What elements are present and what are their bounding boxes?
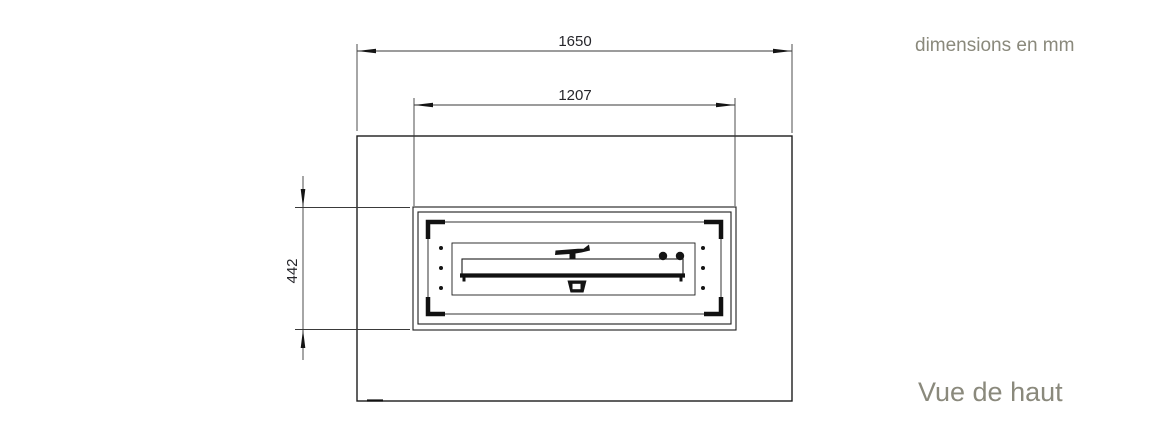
arrowhead-left xyxy=(357,49,376,54)
corner-bracket-top-right xyxy=(704,222,721,239)
dimension-overall-width: 1650 xyxy=(357,33,792,133)
burner-assembly xyxy=(413,207,736,330)
corner-bracket-bottom-left xyxy=(428,297,445,314)
dimension-value-burner-depth: 442 xyxy=(284,258,301,283)
screw-dot xyxy=(439,286,443,290)
drain-valve-window xyxy=(573,284,581,289)
control-knob-right xyxy=(676,252,684,260)
dimension-burner-depth: 442 xyxy=(284,176,410,360)
corner-bracket-top-left xyxy=(428,222,445,239)
burner-assembly-inner-frame xyxy=(418,212,731,324)
corner-bracket-bottom-right xyxy=(704,297,721,314)
arrowhead-bottom xyxy=(301,330,306,349)
screw-dot xyxy=(439,266,443,270)
screw-dot xyxy=(701,286,705,290)
burner-mount-frame xyxy=(428,222,721,314)
control-knob-left xyxy=(659,252,667,260)
dimension-burner-width: 1207 xyxy=(414,87,735,206)
technical-drawing-page: 1650 1207 442 dimensions en mm Vue de ha… xyxy=(0,0,1158,439)
arrowhead-right xyxy=(716,103,735,108)
dimension-value-burner-width: 1207 xyxy=(558,87,591,104)
screw-dot xyxy=(439,246,443,250)
arrowhead-top xyxy=(301,189,306,208)
table-top-outline xyxy=(357,136,792,401)
dimension-value-overall-width: 1650 xyxy=(558,33,591,50)
screw-dot xyxy=(701,246,705,250)
arrowhead-right xyxy=(773,49,792,54)
top-view-technical-drawing: 1650 1207 442 dimensions en mm Vue de ha… xyxy=(0,0,1158,439)
view-label: Vue de haut xyxy=(918,377,1063,407)
arrowhead-left xyxy=(414,103,433,108)
screw-dot xyxy=(701,266,705,270)
igniter-detail xyxy=(555,245,590,259)
units-note: dimensions en mm xyxy=(915,35,1074,56)
